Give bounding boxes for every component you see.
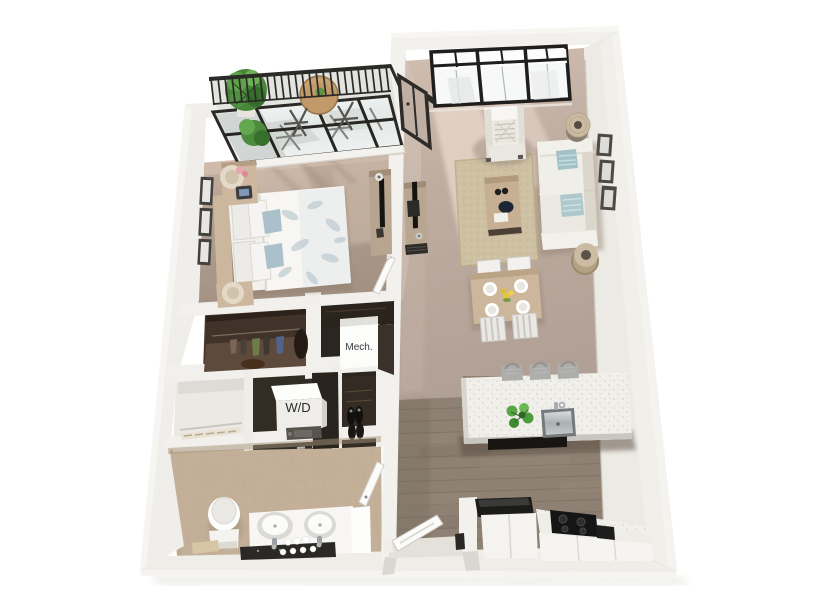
svg-text:W/D: W/D bbox=[285, 400, 310, 415]
svg-text:Mech.: Mech. bbox=[345, 342, 372, 353]
